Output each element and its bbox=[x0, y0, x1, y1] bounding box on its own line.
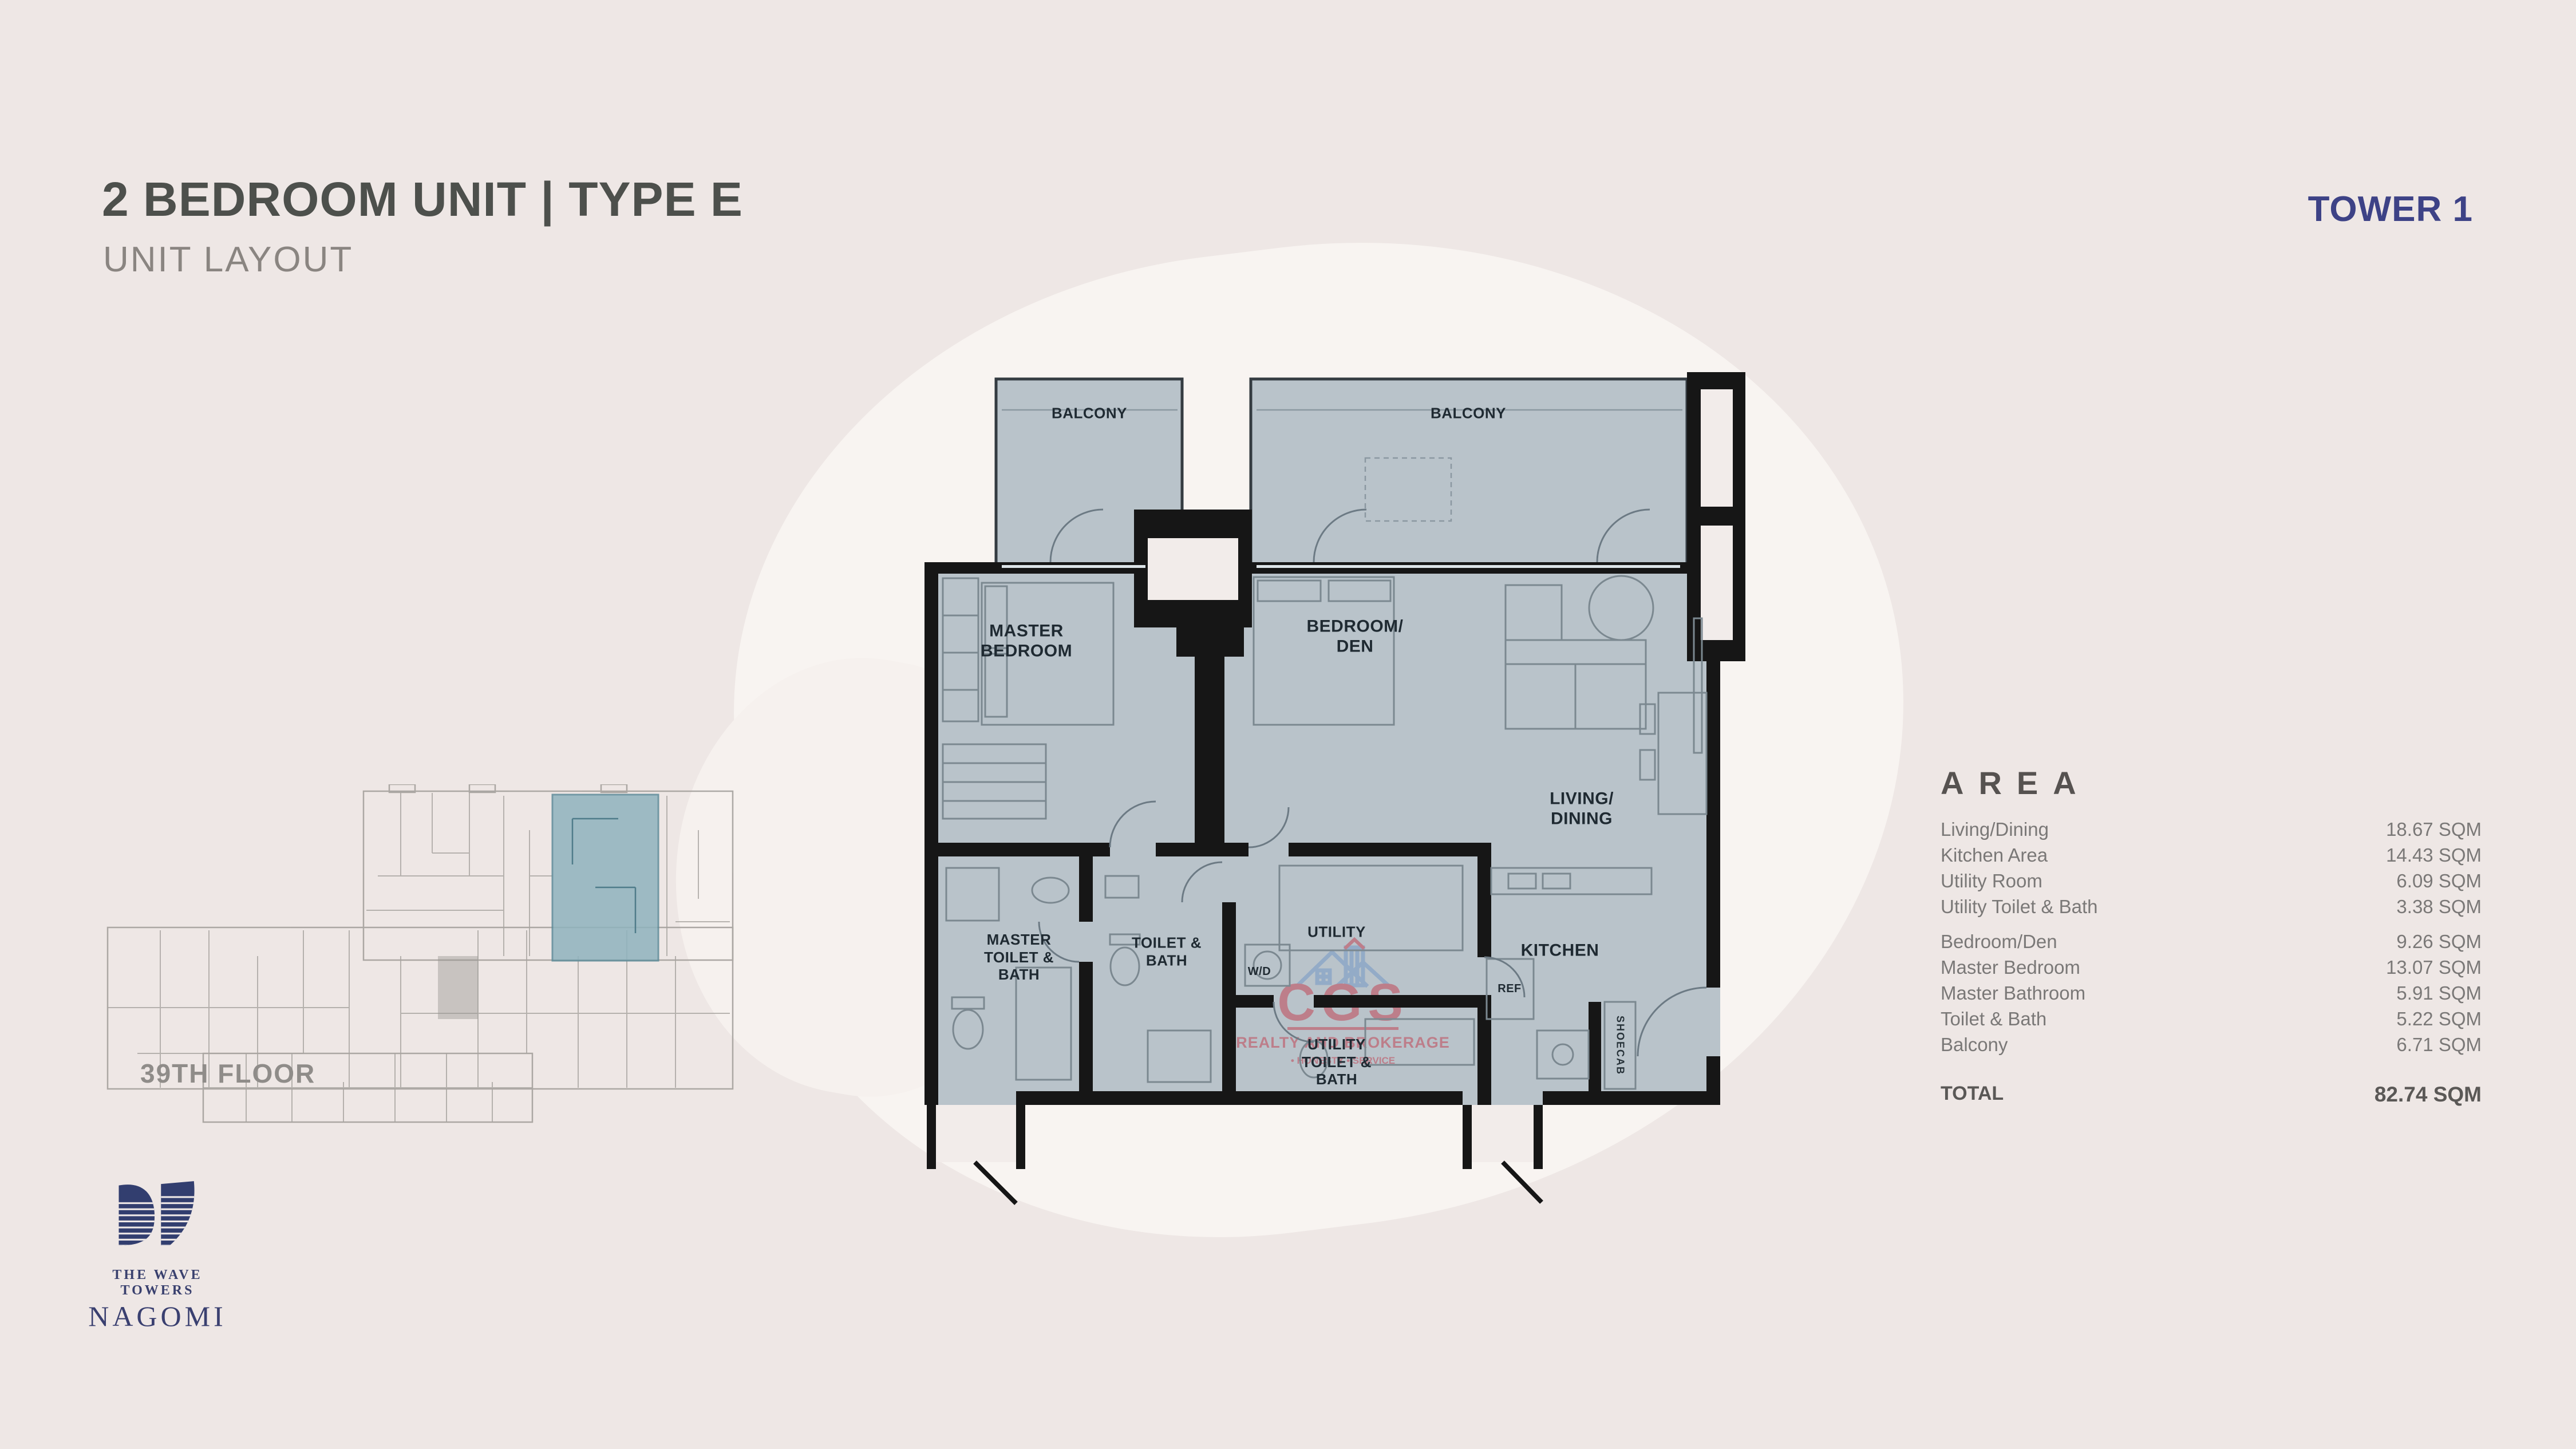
room-label-refrigerator: REF bbox=[1498, 982, 1522, 996]
area-row-value: 6.09 SQM bbox=[2396, 868, 2482, 894]
area-total-label: TOTAL bbox=[1941, 1083, 2004, 1107]
room-label-living-dining: LIVING/ DINING bbox=[1550, 789, 1614, 830]
page-subtitle: UNIT LAYOUT bbox=[103, 239, 353, 280]
area-table: AREA Living/Dining 18.67 SQM Kitchen Are… bbox=[1941, 764, 2482, 1107]
room-label-balcony-right: BALCONY bbox=[1431, 405, 1506, 423]
area-row-label: Toilet & Bath bbox=[1941, 1006, 2046, 1032]
area-row-label: Bedroom/Den bbox=[1941, 929, 2057, 954]
area-row: Utility Room 6.09 SQM bbox=[1941, 868, 2482, 894]
room-label-shoe-cabinet: SHOECAB bbox=[1614, 1016, 1626, 1075]
logo-wordmark: NAGOMI bbox=[86, 1300, 229, 1333]
area-row: Living/Dining 18.67 SQM bbox=[1941, 816, 2482, 842]
area-row-label: Balcony bbox=[1941, 1032, 2008, 1057]
area-row: Kitchen Area 14.43 SQM bbox=[1941, 842, 2482, 868]
logo-brand-line: THE WAVE TOWERS bbox=[86, 1268, 229, 1298]
area-heading: AREA bbox=[1941, 764, 2482, 802]
wave-towers-logo-icon bbox=[114, 1168, 200, 1260]
room-label-washer-dryer: W/D bbox=[1248, 965, 1271, 979]
unit-floor-plan: CGS REALTY AND BROKERAGE • HONESTY • SER… bbox=[879, 372, 1769, 1208]
room-label-bedroom-den: BEDROOM/ DEN bbox=[1307, 617, 1404, 657]
floorplate-highlighted-unit bbox=[552, 795, 658, 961]
area-row: Bedroom/Den 9.26 SQM bbox=[1941, 929, 2482, 954]
area-total-value: 82.74 SQM bbox=[2374, 1083, 2482, 1107]
area-row-value: 5.22 SQM bbox=[2396, 1006, 2482, 1032]
room-label-master-toilet-bath: MASTER TOILET & BATH bbox=[984, 931, 1054, 984]
room-label-master-bedroom: MASTER BEDROOM bbox=[981, 621, 1072, 662]
room-label-toilet-bath: TOILET & BATH bbox=[1132, 934, 1202, 969]
room-label-utility-toilet-bath: UTILITY TOILET & BATH bbox=[1302, 1036, 1372, 1088]
area-row-label: Utility Toilet & Bath bbox=[1941, 894, 2098, 919]
area-row: Balcony 6.71 SQM bbox=[1941, 1032, 2482, 1057]
area-row: Master Bathroom 5.91 SQM bbox=[1941, 980, 2482, 1006]
page-title: 2 BEDROOM UNIT | TYPE E bbox=[102, 172, 743, 227]
area-row-label: Kitchen Area bbox=[1941, 842, 2048, 868]
area-row-value: 18.67 SQM bbox=[2386, 816, 2482, 842]
area-row-value: 6.71 SQM bbox=[2396, 1032, 2482, 1057]
watermark-underline bbox=[1287, 1027, 1398, 1030]
unit-layout-page: 2 BEDROOM UNIT | TYPE E UNIT LAYOUT TOWE… bbox=[0, 0, 2576, 1449]
area-row: Utility Toilet & Bath 3.38 SQM bbox=[1941, 894, 2482, 919]
room-label-utility: UTILITY bbox=[1307, 923, 1366, 941]
area-row-value: 9.26 SQM bbox=[2396, 929, 2482, 954]
area-row-value: 13.07 SQM bbox=[2386, 954, 2482, 980]
tower-label: TOWER 1 bbox=[2308, 189, 2473, 230]
area-row-value: 14.43 SQM bbox=[2386, 842, 2482, 868]
area-total-row: TOTAL 82.74 SQM bbox=[1941, 1083, 2482, 1107]
area-row: Toilet & Bath 5.22 SQM bbox=[1941, 1006, 2482, 1032]
developer-logo: THE WAVE TOWERS NAGOMI bbox=[86, 1168, 229, 1333]
area-row-label: Utility Room bbox=[1941, 868, 2042, 894]
area-row-value: 3.38 SQM bbox=[2396, 894, 2482, 919]
area-row: Master Bedroom 13.07 SQM bbox=[1941, 954, 2482, 980]
floorplate-label: 39TH FLOOR bbox=[140, 1058, 315, 1089]
area-row-label: Living/Dining bbox=[1941, 816, 2049, 842]
area-row-label: Master Bedroom bbox=[1941, 954, 2080, 980]
room-label-kitchen: KITCHEN bbox=[1521, 940, 1599, 960]
area-row-label: Master Bathroom bbox=[1941, 980, 2085, 1006]
area-row-value: 5.91 SQM bbox=[2396, 980, 2482, 1006]
room-label-balcony-left: BALCONY bbox=[1052, 405, 1127, 423]
floorplate-core bbox=[438, 956, 478, 1019]
